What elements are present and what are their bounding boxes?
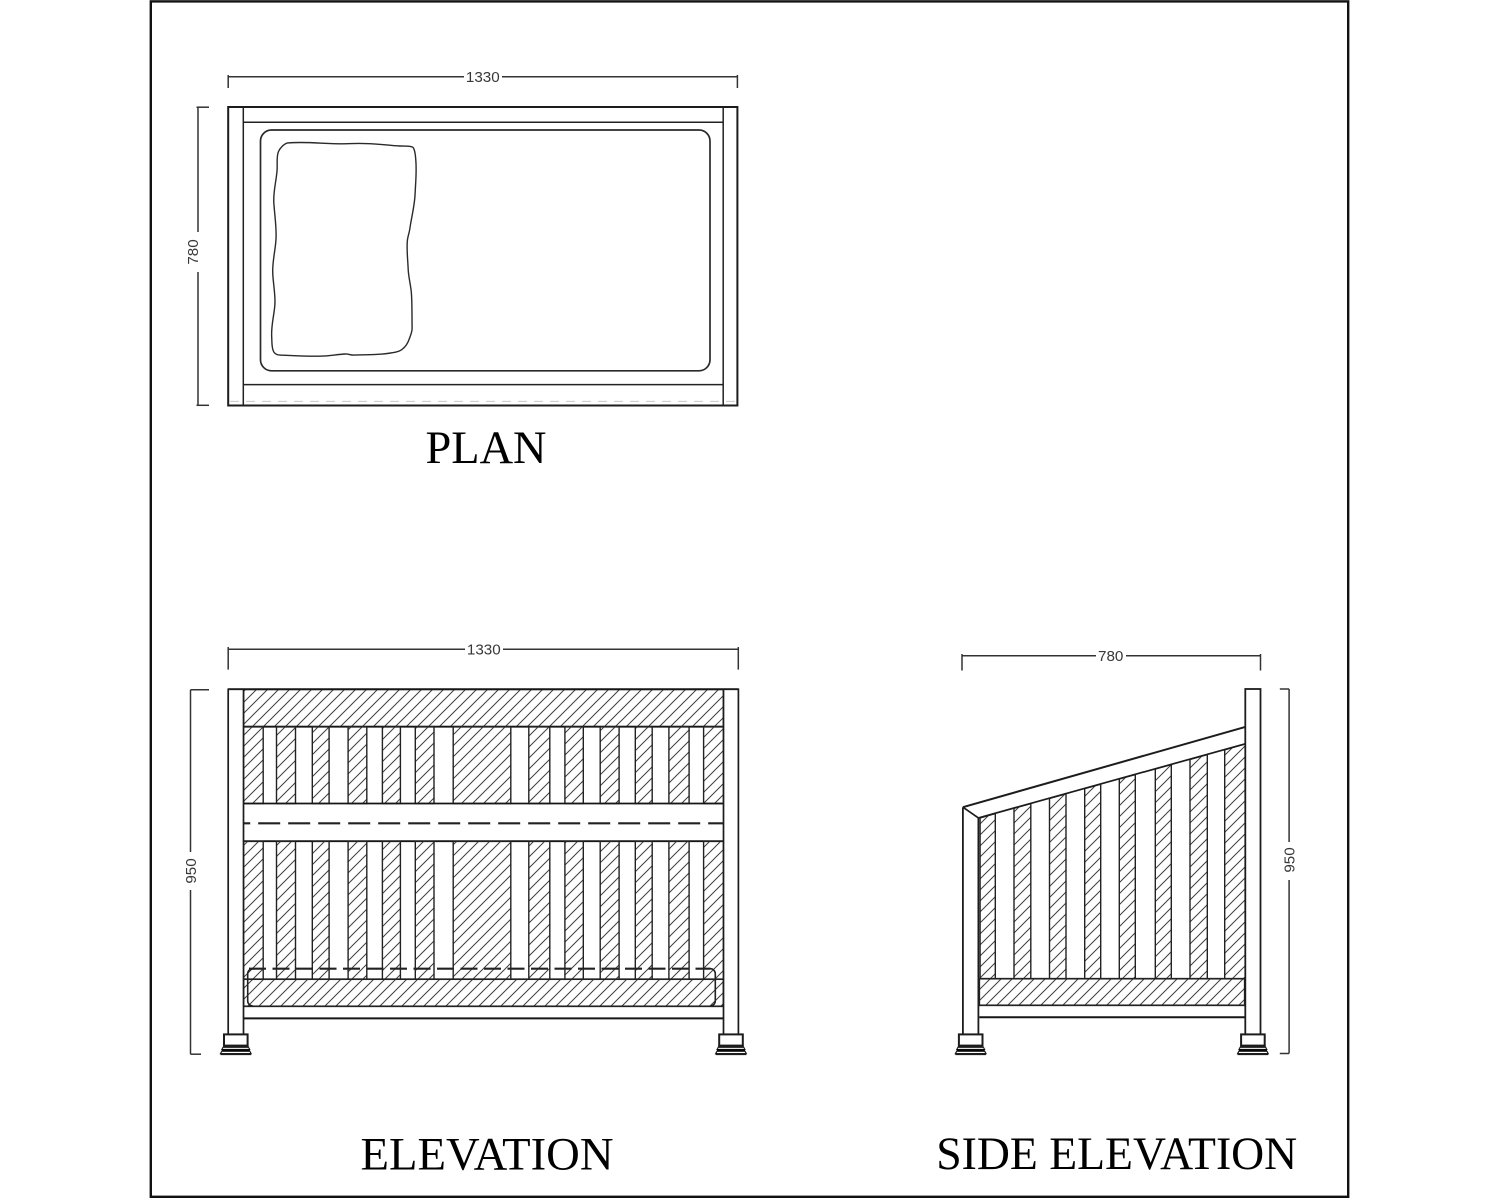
- svg-text:1330: 1330: [467, 642, 501, 659]
- svg-text:780: 780: [185, 239, 202, 264]
- svg-text:950: 950: [183, 858, 200, 883]
- svg-text:780: 780: [1098, 648, 1123, 665]
- svg-text:PLAN: PLAN: [426, 422, 547, 474]
- svg-text:1330: 1330: [466, 69, 500, 86]
- svg-text:ELEVATION: ELEVATION: [361, 1129, 614, 1181]
- svg-text:SIDE ELEVATION: SIDE ELEVATION: [936, 1128, 1297, 1180]
- svg-text:950: 950: [1282, 847, 1299, 872]
